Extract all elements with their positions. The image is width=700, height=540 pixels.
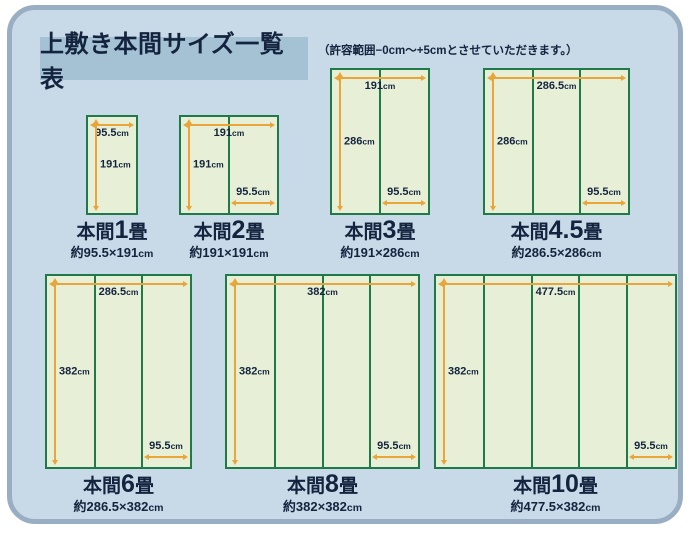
left-dimension-line <box>443 282 445 461</box>
panel-dimension-arrowhead-left <box>144 454 149 460</box>
mat-divider-line <box>274 276 276 467</box>
diagram-title-number: 4.5 <box>549 216 584 244</box>
left-dimension-label: 191cm <box>100 160 131 171</box>
panel-dimension-label: 95.5cm <box>231 187 275 198</box>
panel-dimension-arrowhead-left <box>629 454 634 460</box>
diagram-title-number: 8 <box>325 470 339 498</box>
unit-cm: cm <box>253 248 268 260</box>
diagram-title-number: 1 <box>115 216 129 244</box>
diagram-title-prefix: 本間 <box>77 222 115 243</box>
panel-dimension-arrowhead-right <box>183 454 188 460</box>
panel-dimension-arrowhead-right <box>411 454 416 460</box>
left-dimension-arrowhead-up <box>232 278 238 283</box>
unit-cm: cm <box>515 136 527 146</box>
diagram-title: 本間1畳 <box>71 216 154 245</box>
diagram-caption: 本間6畳約286.5×382cm <box>73 470 163 514</box>
panel-dimension-line <box>148 456 184 458</box>
left-dimension-arrowhead-up <box>337 72 343 77</box>
unit-cm: cm <box>656 441 668 451</box>
unit-cm: cm <box>257 366 269 376</box>
left-dimension-arrowhead-down <box>52 460 58 465</box>
diagram-honma-4-5jo: 286.5cm286cm95.5cm本間4.5畳約286.5×286cm <box>483 68 630 215</box>
diagram-title-suffix: 畳 <box>128 222 147 243</box>
top-dimension-label: 477.5cm <box>436 287 675 298</box>
left-dimension-line <box>95 123 97 207</box>
top-dimension-line <box>491 77 622 79</box>
top-dimension-label: 286.5cm <box>485 81 628 92</box>
diagram-title-number: 2 <box>232 216 246 244</box>
diagram-caption: 本間3畳約191×286cm <box>340 216 419 260</box>
panel-dimension-arrowhead-left <box>582 200 587 206</box>
diagram-title-suffix: 畳 <box>245 222 264 243</box>
diagram-caption: 本間10畳約477.5×382cm <box>510 470 600 514</box>
unit-cm: cm <box>586 248 601 260</box>
left-dimension-arrowhead-down <box>441 460 447 465</box>
panel-dimension-line <box>235 202 271 204</box>
left-dimension-label: 382cm <box>239 366 270 377</box>
unit-cm: cm <box>148 502 163 514</box>
left-dimension-line <box>339 76 341 207</box>
unit-cm: cm <box>466 366 478 376</box>
size-chart-page: 上敷き本間サイズ一覧表 （許容範囲−0cm〜+5cmとさせていただきます。） 9… <box>0 0 700 540</box>
top-dimension-label: 382cm <box>227 287 418 298</box>
unit-cm: cm <box>117 128 129 138</box>
page-title-text: 上敷き本間サイズ一覧表 <box>40 24 308 94</box>
diagram-caption: 本間8畳約382×382cm <box>283 470 362 514</box>
left-dimension-line <box>188 123 190 207</box>
panel-dimension-arrowhead-left <box>372 454 377 460</box>
left-dimension-arrowhead-up <box>441 278 447 283</box>
diagram-title: 本間8畳 <box>283 470 362 499</box>
panel-dimension-line <box>586 202 622 204</box>
page-title: 上敷き本間サイズ一覧表 <box>40 37 308 80</box>
diagram-title-prefix: 本間 <box>287 476 325 497</box>
top-dimension-line <box>94 124 130 126</box>
panel-dimension-label: 95.5cm <box>144 441 188 452</box>
top-dimension-label: 191cm <box>181 128 277 139</box>
left-dimension-arrowhead-down <box>93 206 99 211</box>
diagram-size-label: 約95.5×191cm <box>71 246 154 261</box>
left-dimension-label: 286cm <box>344 136 375 147</box>
left-dimension-label: 191cm <box>193 160 224 171</box>
mat-divider-line <box>94 276 96 467</box>
diagram-title: 本間10畳 <box>510 470 600 499</box>
panel-dimension-arrowhead-right <box>621 200 626 206</box>
mat-divider-line <box>483 276 485 467</box>
left-dimension-line <box>54 282 56 461</box>
top-dimension-line <box>442 283 669 285</box>
top-dimension-line <box>187 124 271 126</box>
diagram-title-suffix: 畳 <box>339 476 358 497</box>
top-dimension-line <box>338 77 422 79</box>
diagram-size-label: 約382×382cm <box>283 500 362 515</box>
panel-dimension-arrowhead-right <box>421 200 426 206</box>
diagram-title-suffix: 畳 <box>396 222 415 243</box>
panel-dimension-arrowhead-left <box>382 200 387 206</box>
left-dimension-arrowhead-down <box>337 206 343 211</box>
unit-cm: cm <box>399 441 411 451</box>
mat-divider-line <box>531 276 533 467</box>
left-dimension-label: 286cm <box>497 136 528 147</box>
unit-cm: cm <box>138 248 153 260</box>
unit-cm: cm <box>404 248 419 260</box>
unit-cm: cm <box>383 81 395 91</box>
left-dimension-line <box>234 282 236 461</box>
diagram-title-number: 10 <box>551 470 579 498</box>
unit-cm: cm <box>211 160 223 170</box>
unit-cm: cm <box>258 187 270 197</box>
mat-divider-line <box>322 276 324 467</box>
panel-dimension-line <box>633 456 669 458</box>
diagram-title-number: 3 <box>383 216 397 244</box>
unit-cm: cm <box>564 81 576 91</box>
diagram-title-suffix: 畳 <box>583 222 602 243</box>
left-dimension-arrowhead-up <box>490 72 496 77</box>
diagram-caption: 本間1畳約95.5×191cm <box>71 216 154 260</box>
diagram-title: 本間3畳 <box>340 216 419 245</box>
top-dimension-label: 286.5cm <box>47 287 190 298</box>
unit-cm: cm <box>609 187 621 197</box>
unit-cm: cm <box>232 128 244 138</box>
diagram-title-prefix: 本間 <box>194 222 232 243</box>
top-dimension-label: 191cm <box>332 81 428 92</box>
left-dimension-arrowhead-up <box>186 119 192 124</box>
diagram-title-prefix: 本間 <box>511 222 549 243</box>
diagram-caption: 本間2畳約191×191cm <box>189 216 268 260</box>
unit-cm: cm <box>126 287 138 297</box>
left-dimension-arrowhead-down <box>490 206 496 211</box>
diagram-title-prefix: 本間 <box>345 222 383 243</box>
unit-cm: cm <box>171 441 183 451</box>
diagram-size-label: 約286.5×382cm <box>73 500 163 515</box>
unit-cm: cm <box>118 160 130 170</box>
mat-divider-line <box>369 276 371 467</box>
top-dimension-line <box>53 283 184 285</box>
panel-dimension-line <box>376 456 412 458</box>
left-dimension-line <box>492 76 494 207</box>
mat-divider-line <box>578 276 580 467</box>
diagram-title: 本間2畳 <box>189 216 268 245</box>
panel-dimension-label: 95.5cm <box>382 187 426 198</box>
panel-dimension-label: 95.5cm <box>372 441 416 452</box>
diagram-title-suffix: 畳 <box>135 476 154 497</box>
left-dimension-arrowhead-up <box>52 278 58 283</box>
mat-divider-line <box>141 276 143 467</box>
unit-cm: cm <box>409 187 421 197</box>
panel-dimension-arrowhead-right <box>270 200 275 206</box>
unit-cm: cm <box>585 502 600 514</box>
diagram-size-label: 約286.5×286cm <box>511 246 603 261</box>
diagram-size-label: 約191×286cm <box>340 246 419 261</box>
unit-cm: cm <box>347 502 362 514</box>
diagram-honma-6jo: 286.5cm382cm95.5cm本間6畳約286.5×382cm <box>45 274 192 469</box>
diagram-honma-3jo: 191cm286cm95.5cm本間3畳約191×286cm <box>330 68 430 215</box>
diagram-title: 本間4.5畳 <box>511 216 603 245</box>
diagram-size-label: 約191×191cm <box>189 246 268 261</box>
diagram-honma-1jo: 95.5cm191cm本間1畳約95.5×191cm <box>86 115 138 215</box>
unit-cm: cm <box>362 136 374 146</box>
diagram-size-label: 約477.5×382cm <box>510 500 600 515</box>
panel-dimension-arrowhead-left <box>231 200 236 206</box>
left-dimension-arrowhead-up <box>93 119 99 124</box>
unit-cm: cm <box>326 287 338 297</box>
left-dimension-arrowhead-down <box>232 460 238 465</box>
top-dimension-line <box>233 283 412 285</box>
diagram-title-suffix: 畳 <box>579 476 598 497</box>
panel-dimension-label: 95.5cm <box>629 441 673 452</box>
left-dimension-label: 382cm <box>59 366 90 377</box>
panel-dimension-arrowhead-right <box>668 454 673 460</box>
diagram-honma-2jo: 191cm191cm95.5cm本間2畳約191×191cm <box>179 115 279 215</box>
diagram-title-number: 6 <box>121 470 135 498</box>
mat-divider-line <box>626 276 628 467</box>
diagram-honma-8jo: 382cm382cm95.5cm本間8畳約382×382cm <box>225 274 420 469</box>
diagram-title: 本間6畳 <box>73 470 163 499</box>
left-dimension-arrowhead-down <box>186 206 192 211</box>
panel-dimension-label: 95.5cm <box>582 187 626 198</box>
tolerance-note: （許容範囲−0cm〜+5cmとさせていただきます。） <box>318 42 578 58</box>
diagram-caption: 本間4.5畳約286.5×286cm <box>511 216 603 260</box>
unit-cm: cm <box>563 287 575 297</box>
left-dimension-label: 382cm <box>448 366 479 377</box>
panel-dimension-line <box>386 202 422 204</box>
diagram-title-prefix: 本間 <box>83 476 121 497</box>
diagram-title-prefix: 本間 <box>513 476 551 497</box>
diagram-honma-10jo: 477.5cm382cm95.5cm本間10畳約477.5×382cm <box>434 274 677 469</box>
unit-cm: cm <box>77 366 89 376</box>
